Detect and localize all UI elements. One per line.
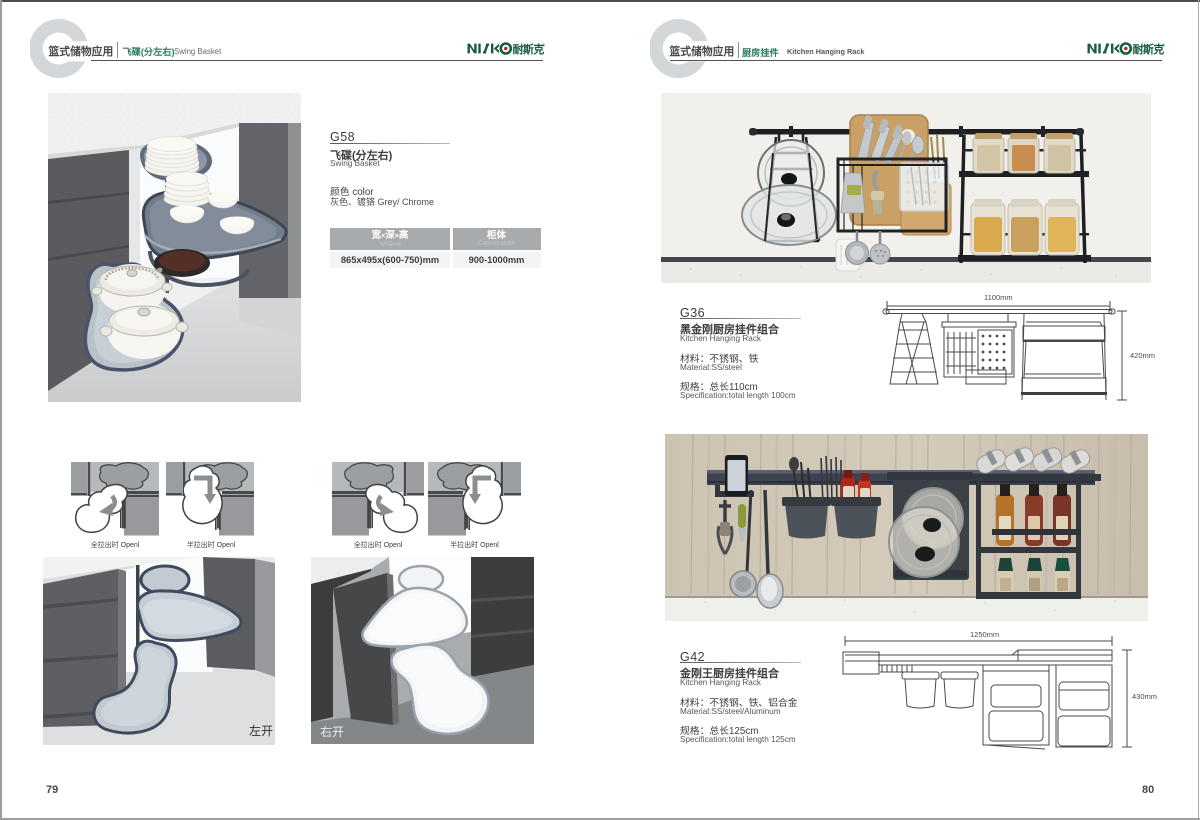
svg-text:®: ® [542, 42, 545, 48]
svg-text:1100mm: 1100mm [984, 293, 1013, 302]
svg-text:左开: 左开 [249, 723, 273, 738]
svg-text:耐斯克: 耐斯克 [1133, 42, 1165, 56]
svg-text:430mm: 430mm [1132, 692, 1157, 701]
svg-text:420mm: 420mm [1130, 351, 1155, 360]
svg-text:®: ® [1162, 42, 1165, 48]
svg-text:右开: 右开 [320, 724, 344, 739]
svg-text:耐斯克: 耐斯克 [513, 42, 545, 56]
svg-text:1250mm: 1250mm [970, 630, 999, 639]
